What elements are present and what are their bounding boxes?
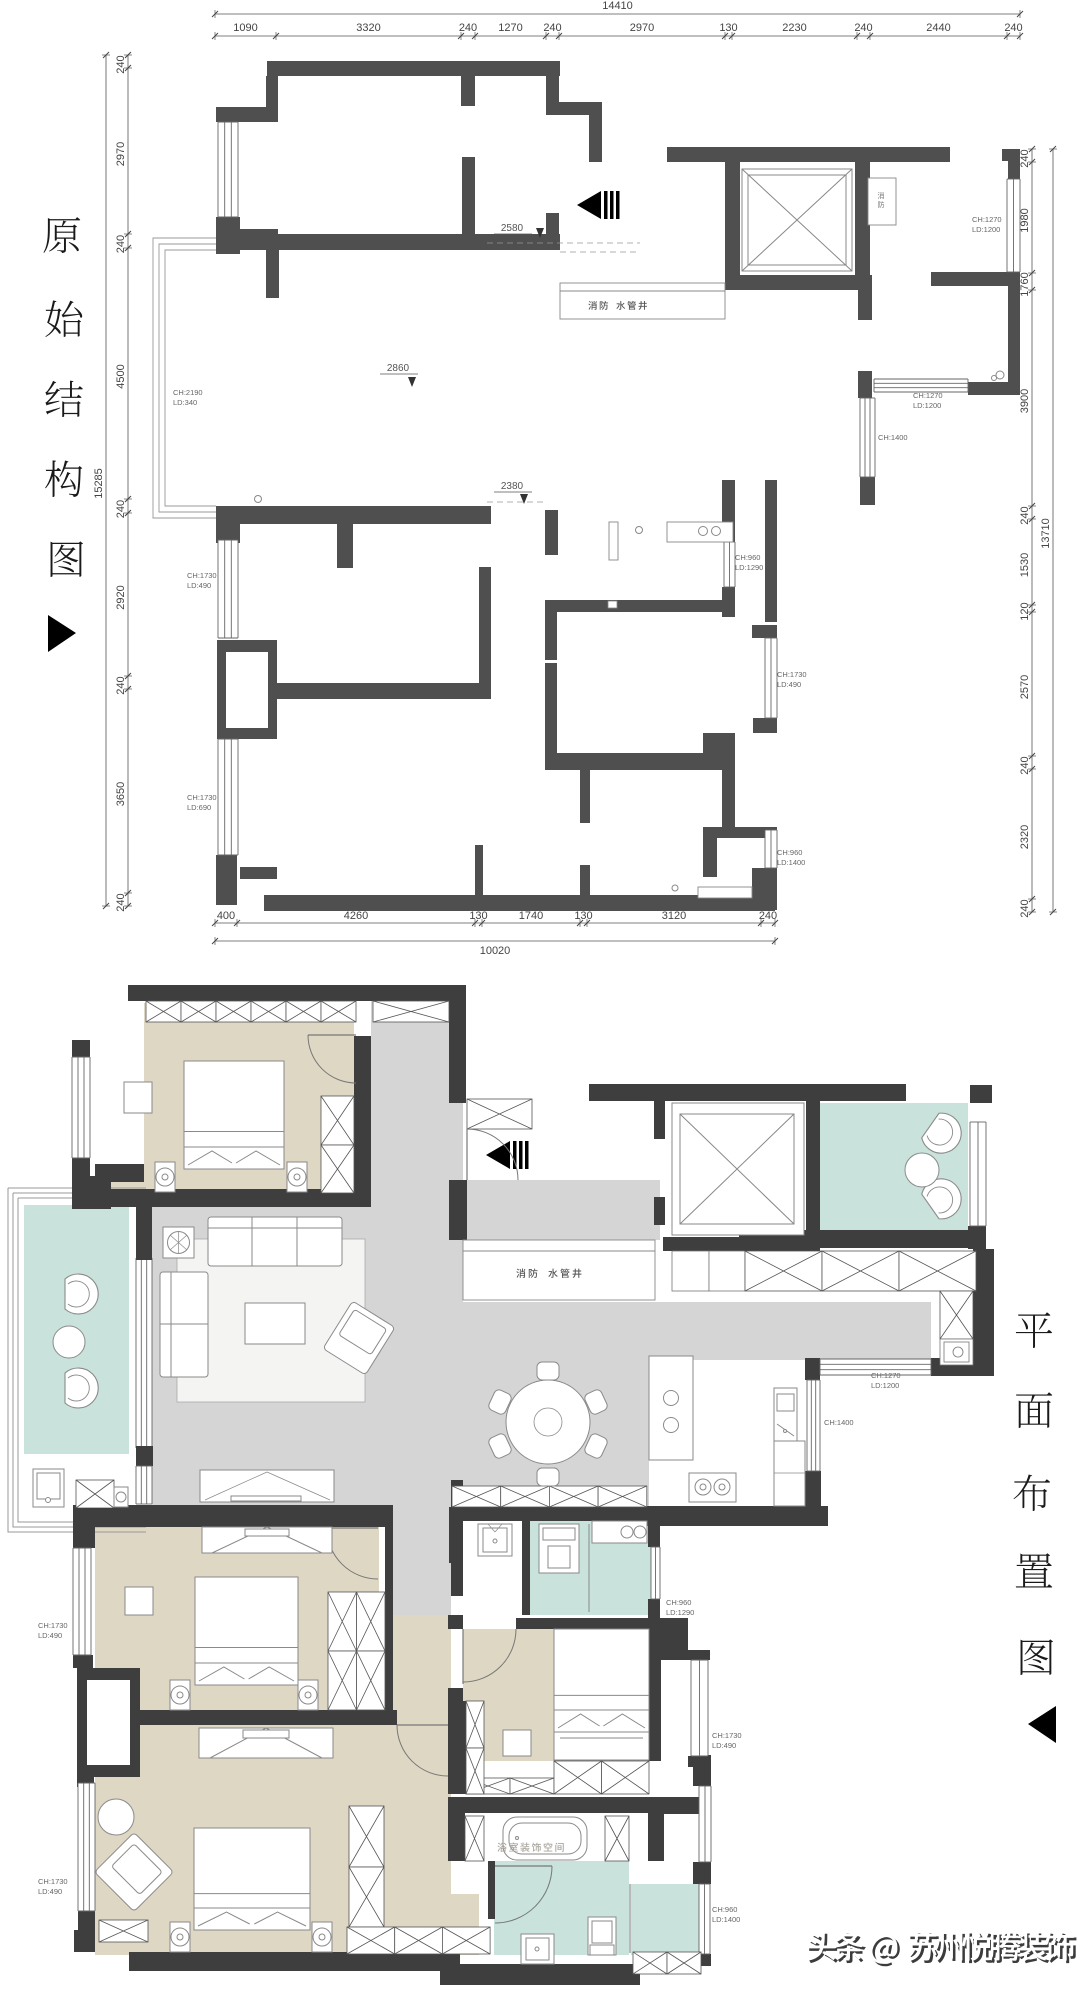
svg-text:LD:1400: LD:1400 [712, 1915, 740, 1924]
svg-text:CH:1730: CH:1730 [712, 1731, 742, 1740]
svg-text:2380: 2380 [501, 481, 524, 492]
svg-text:LD:1200: LD:1200 [913, 401, 941, 410]
svg-text:240: 240 [854, 22, 872, 34]
svg-text:CH:2190: CH:2190 [173, 388, 203, 397]
svg-text:CH:1730: CH:1730 [777, 670, 807, 679]
svg-text:3900: 3900 [1019, 389, 1031, 413]
svg-text:240: 240 [1019, 899, 1031, 917]
svg-text:240: 240 [115, 500, 127, 518]
svg-text:10020: 10020 [480, 945, 511, 957]
svg-text:130: 130 [574, 910, 592, 922]
svg-text:LD:490: LD:490 [38, 1887, 62, 1896]
svg-text:13710: 13710 [1040, 518, 1052, 549]
svg-text:2580: 2580 [501, 223, 524, 234]
svg-text:1980: 1980 [1019, 208, 1031, 232]
svg-text:2970: 2970 [115, 142, 127, 166]
svg-text:2920: 2920 [115, 585, 127, 609]
svg-text:15285: 15285 [93, 468, 105, 499]
svg-text:消: 消 [878, 191, 885, 200]
svg-text:CH:1270: CH:1270 [913, 391, 943, 400]
svg-text:LD:1290: LD:1290 [735, 563, 763, 572]
svg-text:4260: 4260 [344, 910, 368, 922]
svg-text:240: 240 [759, 910, 777, 922]
svg-text:1740: 1740 [519, 910, 543, 922]
svg-text:130: 130 [469, 910, 487, 922]
svg-text:240: 240 [1004, 22, 1022, 34]
svg-text:240: 240 [1019, 506, 1031, 524]
svg-text:240: 240 [115, 235, 127, 253]
svg-text:2320: 2320 [1019, 825, 1031, 849]
svg-text:2970: 2970 [630, 22, 654, 34]
svg-text:1270: 1270 [498, 22, 522, 34]
svg-text:CH:960: CH:960 [735, 553, 760, 562]
svg-text:120: 120 [1019, 602, 1031, 620]
svg-text:1090: 1090 [233, 22, 257, 34]
svg-text:240: 240 [115, 676, 127, 694]
svg-text:LD:1290: LD:1290 [666, 1608, 694, 1617]
svg-text:130: 130 [719, 22, 737, 34]
svg-text:400: 400 [217, 910, 235, 922]
svg-text:240: 240 [1019, 756, 1031, 774]
svg-text:LD:340: LD:340 [173, 398, 197, 407]
svg-text:LD:1200: LD:1200 [972, 225, 1000, 234]
svg-text:CH:1400: CH:1400 [878, 433, 908, 442]
svg-text:3320: 3320 [356, 22, 380, 34]
svg-text:2860: 2860 [387, 363, 410, 374]
svg-text:240: 240 [115, 893, 127, 911]
svg-text:CH:1730: CH:1730 [187, 793, 217, 802]
svg-text:4500: 4500 [115, 364, 127, 388]
svg-text:CH:1730: CH:1730 [187, 571, 217, 580]
svg-text:LD:1200: LD:1200 [871, 1381, 899, 1390]
svg-text:LD:490: LD:490 [777, 680, 801, 689]
svg-text:CH:960: CH:960 [666, 1598, 691, 1607]
svg-text:LD:490: LD:490 [38, 1631, 62, 1640]
svg-text:CH:1270: CH:1270 [871, 1371, 901, 1380]
svg-text:2570: 2570 [1019, 675, 1031, 699]
svg-text:防: 防 [878, 200, 885, 209]
svg-text:LD:690: LD:690 [187, 803, 211, 812]
svg-text:3120: 3120 [662, 910, 686, 922]
svg-text:240: 240 [459, 22, 477, 34]
svg-text:240: 240 [115, 55, 127, 73]
svg-text:CH:960: CH:960 [712, 1905, 737, 1914]
svg-text:CH:1730: CH:1730 [38, 1877, 68, 1886]
svg-text:CH:1730: CH:1730 [38, 1621, 68, 1630]
svg-text:CH:1270: CH:1270 [972, 215, 1002, 224]
svg-text:240: 240 [1019, 149, 1031, 167]
svg-text:14410: 14410 [602, 0, 633, 12]
svg-text:2230: 2230 [782, 22, 806, 34]
svg-text:240: 240 [543, 22, 561, 34]
svg-text:LD:490: LD:490 [712, 1741, 736, 1750]
svg-text:CH:960: CH:960 [777, 848, 802, 857]
svg-text:1530: 1530 [1019, 553, 1031, 577]
svg-text:LD:1400: LD:1400 [777, 858, 805, 867]
svg-text:1760: 1760 [1019, 272, 1031, 296]
svg-text:3650: 3650 [115, 782, 127, 806]
svg-text:CH:1400: CH:1400 [824, 1418, 854, 1427]
svg-text:2440: 2440 [926, 22, 950, 34]
svg-text:LD:490: LD:490 [187, 581, 211, 590]
